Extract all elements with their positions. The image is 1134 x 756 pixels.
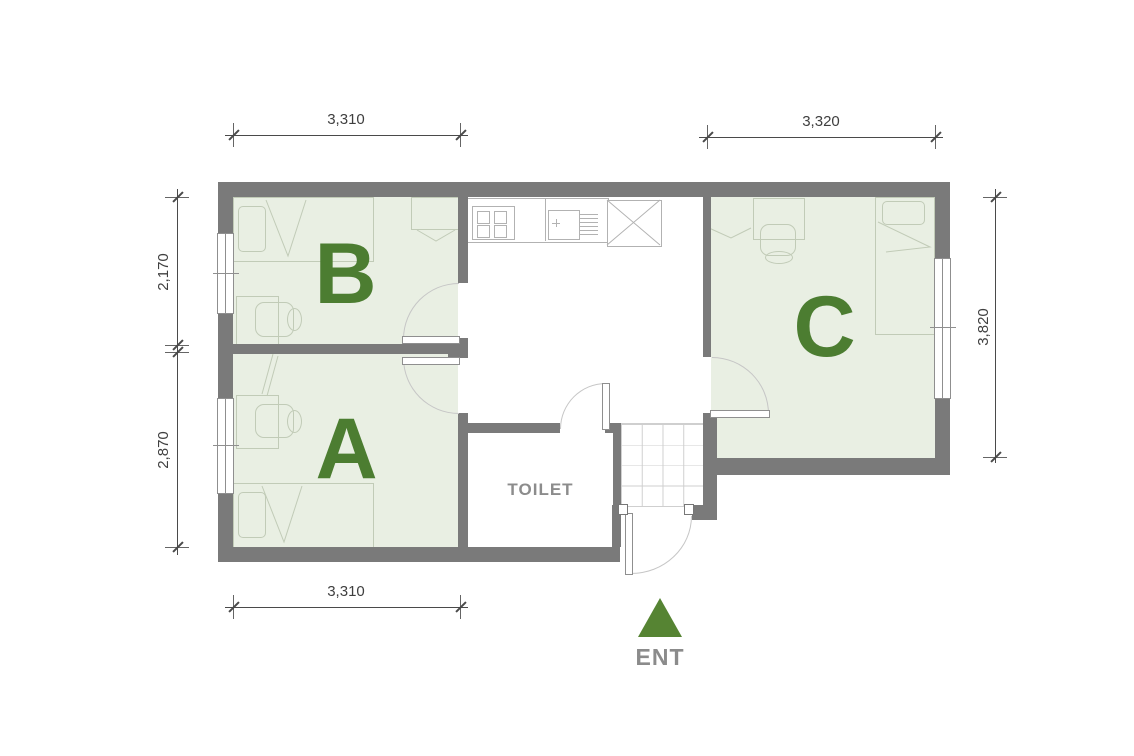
dimension-line [699, 137, 943, 138]
blanket-fold-icon [258, 484, 306, 544]
window [934, 258, 951, 399]
wall [458, 197, 468, 283]
counter-divider [545, 198, 546, 241]
floor-plan: B A C TOILET ENT 3,310 3,320 3,310 2,170 [0, 0, 1134, 756]
wall [468, 423, 560, 433]
wall [458, 413, 468, 547]
door-leaf [402, 357, 460, 365]
desk-front-icon [707, 226, 753, 240]
door-leaf [402, 336, 460, 344]
burner-icon [477, 225, 490, 238]
room-label-a: A [299, 405, 394, 493]
desk-icon [411, 197, 460, 230]
window-tick [213, 273, 239, 274]
window-tick [930, 327, 956, 328]
dimension-line [225, 135, 468, 136]
faucet-cross-icon [556, 219, 557, 227]
wall [717, 458, 950, 475]
toilet-label: TOILET [468, 433, 613, 547]
wall [703, 197, 711, 357]
wall [233, 344, 448, 354]
dimension-label-left-upper: 2,170 [154, 232, 172, 312]
entrance-arrow-icon [638, 598, 682, 637]
drainboard-icon [579, 214, 598, 236]
wall [703, 413, 717, 505]
burner-icon [477, 211, 490, 224]
wall [218, 182, 950, 197]
dimension-label-left-lower: 2,870 [154, 410, 172, 490]
door-jamb [618, 504, 628, 515]
door-leaf [602, 383, 610, 430]
door-jamb [684, 504, 694, 515]
window-tick [213, 445, 239, 446]
door-swing-arc [560, 383, 606, 429]
entrance-door-leaf [625, 513, 633, 575]
blanket-fold-icon [876, 219, 933, 255]
refrigerator-cross-icon [607, 200, 660, 245]
entry-tile-floor [620, 423, 705, 507]
window [217, 398, 234, 494]
entrance-door-swing-arc [631, 516, 692, 574]
dimension-label-bottom: 3,310 [306, 581, 386, 601]
wall [692, 505, 717, 520]
dimension-label-top-left: 3,310 [306, 109, 386, 129]
burner-icon [494, 225, 507, 238]
door-leaf [710, 410, 770, 418]
monitor-icon [259, 353, 281, 397]
window [217, 233, 234, 314]
chair-footring-icon [765, 251, 793, 264]
desk-front-icon [415, 228, 457, 244]
dimension-label-top-right: 3,320 [781, 111, 861, 131]
room-label-c: C [777, 283, 872, 371]
dimension-label-right: 3,820 [974, 287, 992, 367]
sink-icon [548, 210, 580, 240]
wall [613, 423, 621, 547]
window-glazing [942, 259, 943, 398]
dimension-line [177, 340, 178, 555]
wall [218, 547, 612, 562]
window-glazing [225, 399, 226, 493]
dimension-line [995, 189, 996, 463]
burner-icon [494, 211, 507, 224]
room-label-b: B [298, 230, 393, 318]
dimension-line [177, 189, 178, 356]
dimension-line [225, 607, 468, 608]
entrance-label: ENT [630, 645, 690, 670]
